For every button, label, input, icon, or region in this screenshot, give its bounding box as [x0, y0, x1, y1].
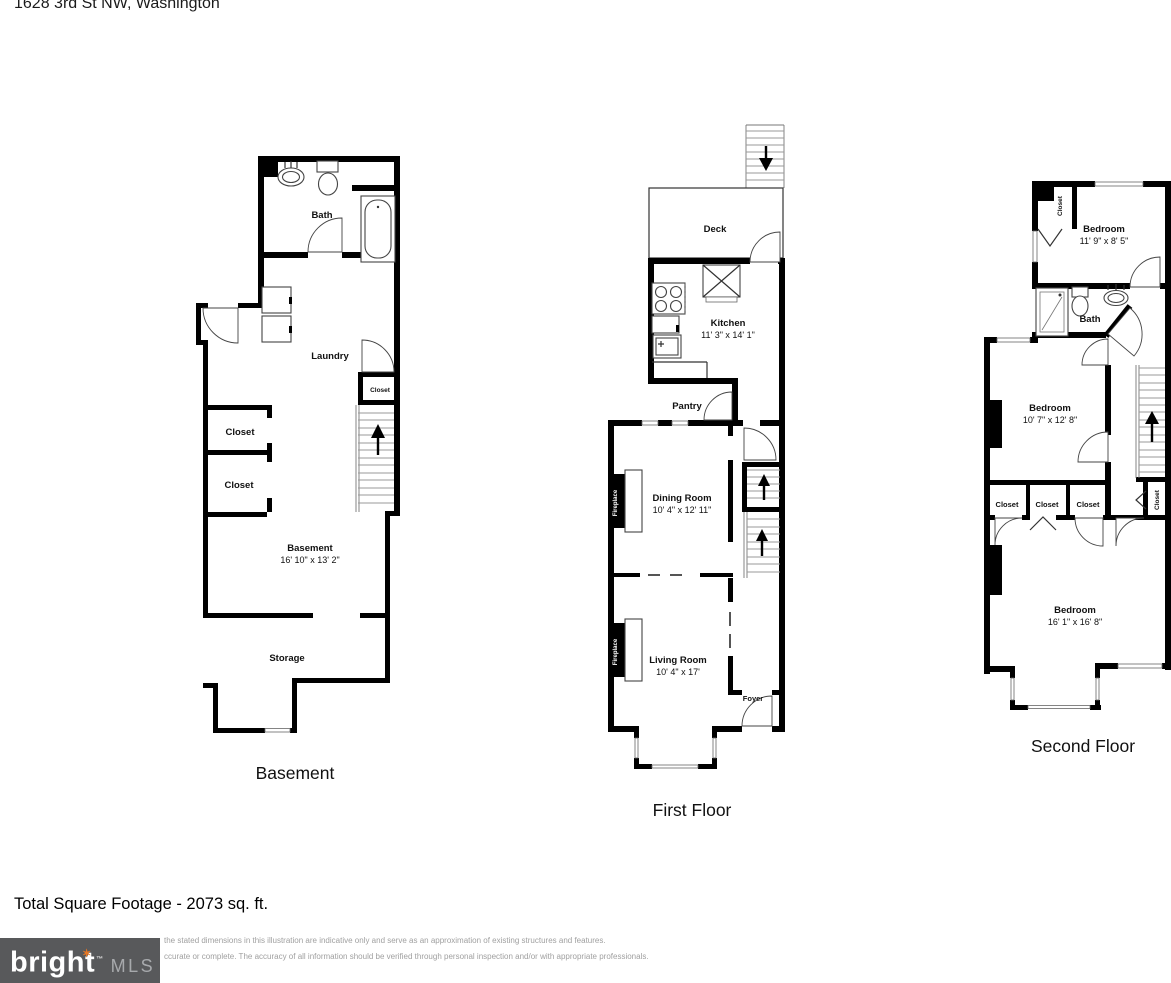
room-dims-kitchen: 11' 3" x 14' 1" — [701, 330, 755, 340]
second-floor-windows — [997, 182, 1162, 709]
stairs-down-arrow-icon — [759, 146, 773, 171]
floor-plan-second-floor: Closet Bedroom 11' 9" x 8' 5" Bath Bedro… — [980, 175, 1171, 765]
room-dims-bedroom-top: 11' 9" x 8' 5" — [1080, 236, 1129, 246]
logo-bright-text: bright™✶ — [10, 945, 104, 978]
room-label-kitchen: Kitchen — [711, 318, 746, 329]
room-label-storage: Storage — [269, 653, 304, 664]
room-label-closet-2: Closet — [1036, 500, 1059, 509]
first-floor-stairs — [744, 470, 780, 578]
first-floor-windows — [635, 421, 716, 768]
room-label-foyer: Foyer — [743, 694, 764, 703]
total-square-footage: Total Square Footage - 2073 sq. ft. — [14, 895, 268, 914]
basement-stairs — [356, 405, 394, 512]
room-label-stair-closet: Closet — [370, 387, 391, 394]
floor-plan-sheet: 1628 3rd St NW, Washington — [0, 0, 1171, 983]
disclaimer-line-2: ccurate or complete. The accuracy of all… — [164, 952, 649, 961]
room-dims-living: 10' 4" x 17' — [656, 667, 700, 677]
disclaimer-line-1: the stated dimensions in this illustrati… — [164, 936, 606, 945]
room-label-laundry: Laundry — [311, 351, 349, 362]
room-label-bedroom-top: Bedroom — [1083, 224, 1125, 235]
fireplace-label: Fireplace — [613, 489, 619, 516]
room-label-deck: Deck — [704, 224, 727, 235]
page-title: 1628 3rd St NW, Washington — [14, 0, 220, 13]
room-label-closet-hall: Closet — [1154, 489, 1161, 510]
room-label-closet-top: Closet — [1057, 195, 1064, 216]
room-label-closet-1: Closet — [996, 500, 1019, 509]
first-floor-title: First Floor — [653, 800, 732, 820]
room-label-dining: Dining Room — [652, 493, 711, 504]
stairs-up-arrow-icon — [756, 474, 770, 556]
room-dims-dining: 10' 4" x 12' 11" — [653, 505, 712, 515]
room-label-basement: Basement — [287, 543, 333, 554]
floor-plan-basement: Bath Laundry Closet Closet Closet Baseme… — [185, 140, 415, 790]
trademark-symbol: ™ — [96, 956, 104, 963]
room-label-closet-lower: Closet — [224, 480, 254, 491]
room-dims-bedroom-mid: 10' 7" x 12' 8" — [1023, 415, 1077, 425]
room-label-bedroom-low: Bedroom — [1054, 605, 1096, 616]
room-label-closet-upper: Closet — [225, 427, 255, 438]
room-dims-bedroom-low: 16' 1" x 16' 8" — [1048, 617, 1102, 627]
room-label-living: Living Room — [649, 655, 707, 666]
basement-windows — [265, 729, 290, 733]
room-label-pantry: Pantry — [672, 401, 702, 412]
basement-title: Basement — [256, 763, 335, 783]
logo-mls-text: MLS — [111, 956, 156, 977]
room-label-bedroom-mid: Bedroom — [1029, 403, 1071, 414]
room-label-bath: Bath — [311, 210, 332, 221]
stairs-up-arrow-icon — [1145, 411, 1159, 442]
fireplace-label: Fireplace — [613, 638, 619, 665]
room-label-closet-3: Closet — [1077, 500, 1100, 509]
floor-plan-first-floor: Deck Kitchen 11' 3" x 14' 1" Pantry Dini… — [600, 115, 795, 825]
second-floor-door-arcs — [995, 229, 1160, 546]
room-label-bath2: Bath — [1079, 314, 1100, 325]
logo-star-icon: ✶ — [82, 939, 92, 969]
bright-mls-logo: bright™✶ MLS — [0, 938, 160, 983]
second-floor-title: Second Floor — [1031, 736, 1135, 756]
second-floor-walls — [984, 181, 1171, 710]
room-dims-basement: 16' 10" x 13' 2" — [280, 555, 339, 565]
